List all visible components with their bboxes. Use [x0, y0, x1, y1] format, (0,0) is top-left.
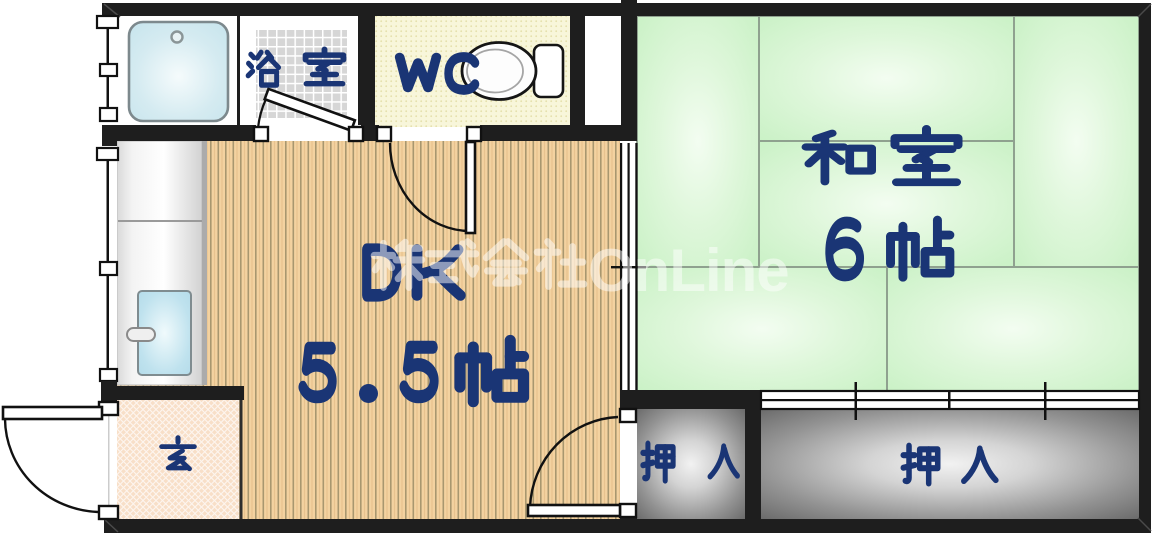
svg-text:OnLine: OnLine: [588, 237, 789, 304]
